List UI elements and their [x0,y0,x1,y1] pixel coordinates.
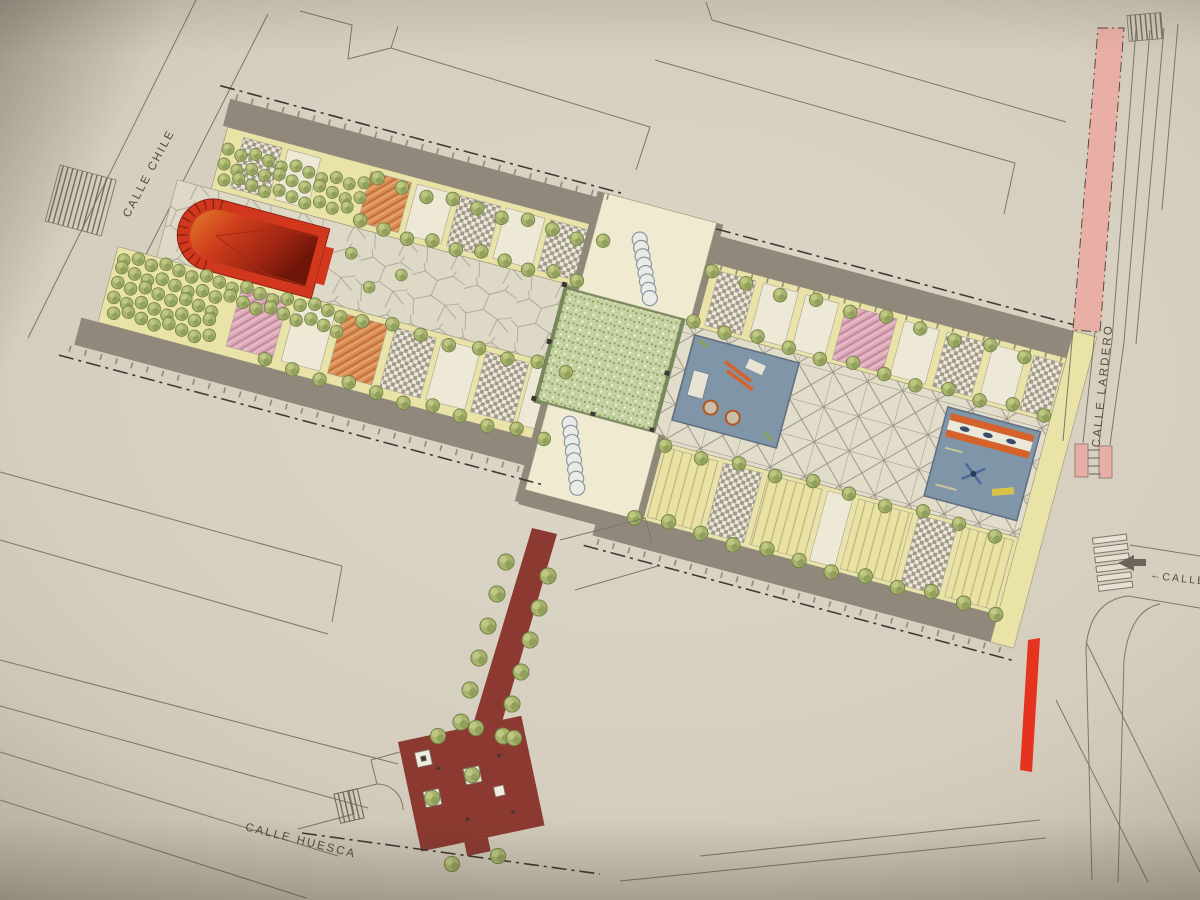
existing-building-hatch [1127,13,1163,42]
tree-symbol [540,568,556,584]
existing-building-hatch [45,165,116,236]
tree-symbol [480,618,496,634]
street-label-calle-chile: CALLE CHILE [121,128,177,220]
tree-symbol [462,682,478,698]
site-plan-photo: CALLE CHILE CALLE LARDERO CALLE HUESCA ←… [0,0,1200,900]
tree-symbol [430,728,445,743]
tree-symbol [513,664,529,680]
tree-symbol [531,600,547,616]
tree-symbol [490,848,505,863]
red-curb-marking [1020,638,1040,772]
tree-symbol [522,632,538,648]
street-label-calle-s: CALLE S [1162,571,1200,589]
pink-crosswalk [1075,444,1112,478]
tree-symbol [506,730,521,745]
tree-symbol [489,586,505,602]
tree-symbol [424,790,439,805]
tree-symbol [464,767,479,782]
tree-symbol [453,714,469,730]
tree-symbol [504,696,520,712]
south-plaza [398,716,547,865]
street-label-calle-huesca: CALLE HUESCA [244,821,357,860]
site-plan-drawing: CALLE CHILE CALLE LARDERO CALLE HUESCA ←… [0,0,1200,900]
tree-symbol [498,554,514,570]
tree-symbol [444,856,459,871]
tree-symbol [468,720,483,735]
tree-symbol [471,650,487,666]
